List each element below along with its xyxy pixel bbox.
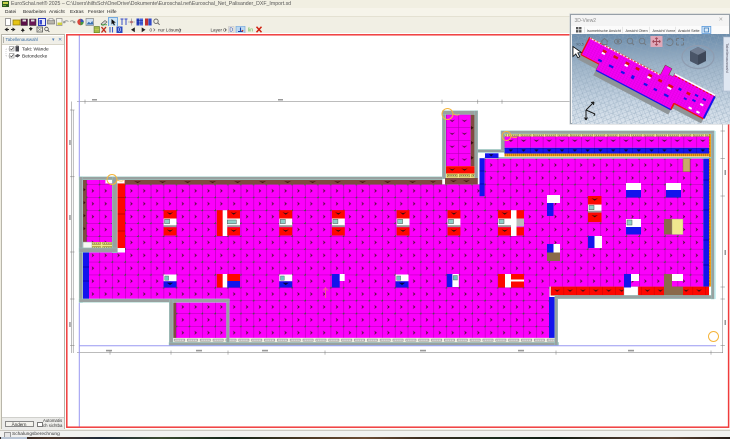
svg-text:Ansicht Vorne: Ansicht Vorne: [652, 29, 675, 33]
svg-text:X0,5: X0,5: [576, 43, 584, 47]
svg-text:Isometrische Ansicht: Isometrische Ansicht: [587, 29, 621, 33]
svg-text:Betondecke: Betondecke: [22, 54, 48, 60]
svg-text:0: 0: [150, 28, 153, 33]
svg-text:Ansicht Oben: Ansicht Oben: [625, 29, 647, 33]
svg-text:nur Lösung: nur Lösung: [158, 28, 181, 33]
svg-text:Ansicht Seite: Ansicht Seite: [678, 29, 700, 33]
svg-text:Takt: Wände: Takt: Wände: [22, 47, 49, 53]
svg-text:Tabellenauswahl: Tabellenauswahl: [725, 43, 730, 73]
svg-text:Layer 0: Layer 0: [211, 28, 227, 33]
